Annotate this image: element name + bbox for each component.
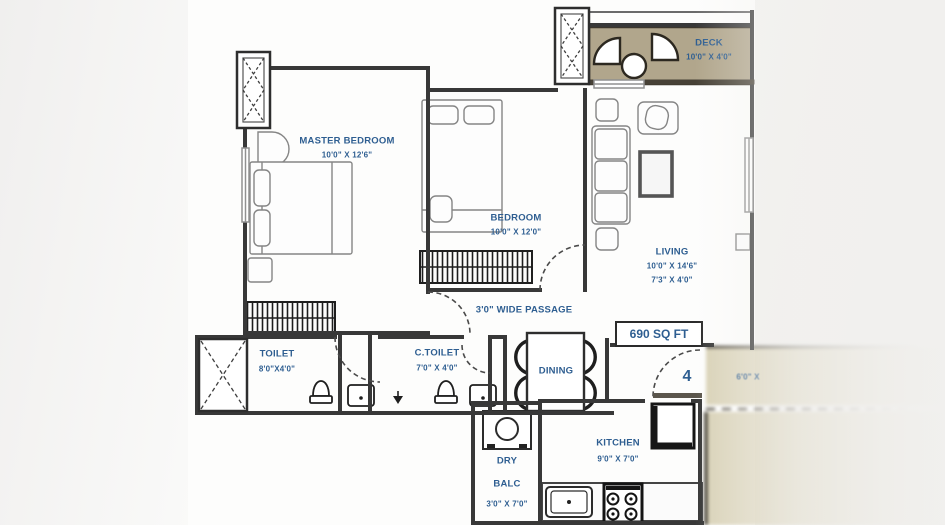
side-table-icon — [596, 99, 618, 121]
floor-plan-image: MASTER BEDROOM 10'0" X 12'6" BEDROOM 10'… — [0, 0, 945, 525]
entrance-door-leaf — [653, 393, 702, 398]
tv-unit-icon — [736, 234, 750, 250]
dresser-icon — [258, 132, 289, 166]
dry-balcony-fixtures — [483, 411, 531, 449]
side-table-icon — [430, 196, 452, 222]
side-table-icon — [248, 258, 272, 282]
pillow-icon — [254, 210, 270, 246]
coffee-table-icon — [640, 152, 672, 196]
pillow-icon — [428, 106, 458, 124]
window-shaft-icon — [555, 8, 589, 84]
bedroom-furniture — [422, 100, 502, 232]
pillow-icon — [464, 106, 494, 124]
side-table-icon — [596, 228, 618, 250]
pillow-icon — [254, 170, 270, 206]
floor-plan-drawing — [0, 0, 945, 525]
fridge-icon — [652, 404, 694, 448]
window-shaft-icon — [237, 52, 270, 128]
deck-table-icon — [622, 54, 646, 78]
corridor-area — [706, 347, 945, 525]
duct-icon — [199, 339, 247, 411]
